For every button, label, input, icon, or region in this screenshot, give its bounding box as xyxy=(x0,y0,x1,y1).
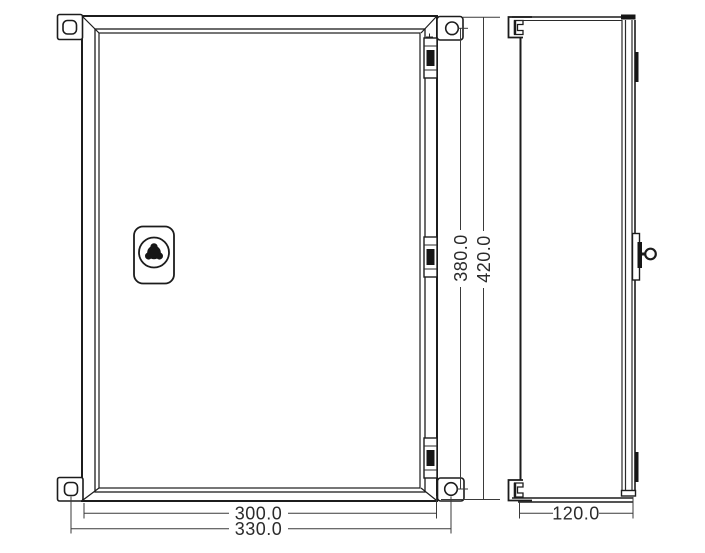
front-view xyxy=(58,15,465,502)
technical-drawing: 380.0 420.0 300.0 330.0 xyxy=(0,0,705,553)
side-view xyxy=(509,15,656,503)
mounting-bracket-top-left xyxy=(58,15,83,40)
door-lock xyxy=(134,227,174,284)
dim-label-380: 380.0 xyxy=(451,234,471,282)
corner-diagonal-bottom-left xyxy=(83,488,99,500)
dim-label-330: 330.0 xyxy=(235,519,283,539)
hinge-knuckle xyxy=(427,50,435,66)
hinge-knuckle xyxy=(427,249,435,265)
door-top-cap xyxy=(621,15,636,20)
door-bottom-cap xyxy=(622,491,636,497)
hinge-bottom xyxy=(424,438,437,478)
side-lock-and-key xyxy=(633,234,656,281)
hinge-pin-bottom xyxy=(635,452,639,482)
side-lock-body xyxy=(638,242,643,268)
hinge-top xyxy=(424,38,437,78)
corner-diagonal-bottom-right xyxy=(421,488,436,500)
corner-diagonal-top-left xyxy=(83,17,99,33)
hinge-knuckle xyxy=(427,450,435,466)
dim-label-420: 420.0 xyxy=(474,235,494,283)
mounting-bracket-bottom-left xyxy=(58,478,84,502)
hinge-middle xyxy=(424,237,437,277)
corner-diagonal-top-right xyxy=(421,17,436,33)
dim-depth: 120.0 xyxy=(520,497,634,524)
hinge-pin-top xyxy=(635,52,639,82)
drawing-canvas: 380.0 420.0 300.0 330.0 xyxy=(0,0,705,553)
dim-label-120: 120.0 xyxy=(552,504,600,524)
dim-vertical-hole-spacing: 380.0 xyxy=(451,28,471,489)
key-ring-icon xyxy=(645,249,656,260)
